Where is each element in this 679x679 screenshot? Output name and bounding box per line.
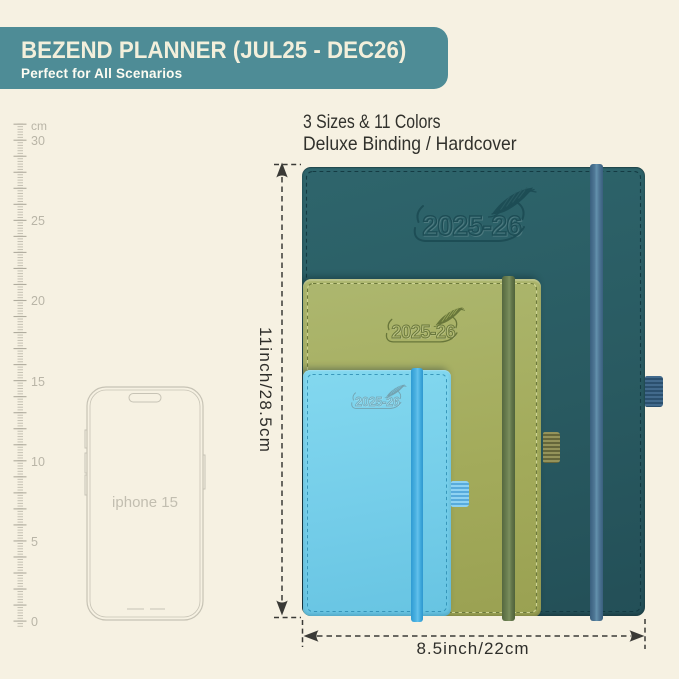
svg-text:11inch/28.5cm: 11inch/28.5cm [256, 327, 275, 453]
svg-text:8.5inch/22cm: 8.5inch/22cm [416, 639, 529, 658]
